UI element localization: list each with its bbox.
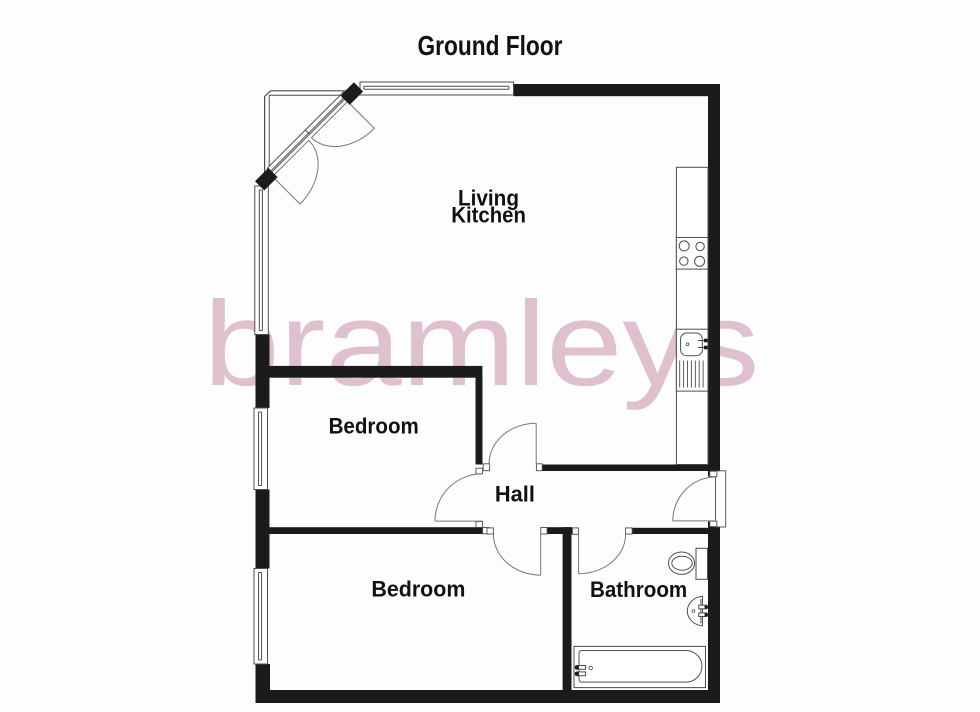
svg-text:Bedroom: Bedroom [329,413,419,438]
svg-text:Ground Floor: Ground Floor [418,30,563,61]
svg-text:Kitchen: Kitchen [451,202,526,227]
svg-text:Bedroom: Bedroom [371,577,465,602]
svg-text:Hall: Hall [495,482,535,507]
svg-text:Bathroom: Bathroom [590,577,687,602]
